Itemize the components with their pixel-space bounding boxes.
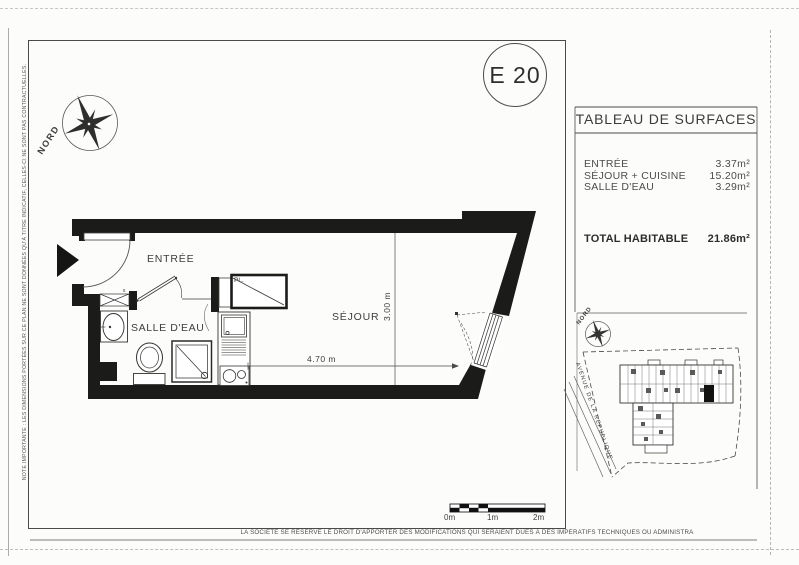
scale-bar (450, 504, 545, 512)
duct-marking-label: tt (123, 288, 126, 293)
toilet (134, 343, 166, 385)
compass-rose-icon (53, 86, 123, 160)
site-map: NORD (564, 306, 741, 477)
street-name-label: AVENUE DE LA REPUBLIQUE (574, 362, 613, 461)
kitchen-unit (218, 312, 250, 386)
site-building (620, 360, 733, 453)
room-label-sejour: SÉJOUR (332, 310, 379, 323)
shower (172, 341, 212, 382)
room-label-entree: ENTRÉE (147, 252, 194, 265)
closet (219, 275, 287, 308)
entrance-arrow-icon (57, 244, 79, 277)
site-compass-icon (581, 315, 615, 351)
closet-label: PL. (234, 277, 244, 284)
compass-north-label: NORD (35, 123, 61, 156)
room-label-salle-deau: SALLE D'EAU (131, 322, 204, 334)
opening-swing-line (204, 304, 209, 331)
window (455, 311, 505, 371)
duct-hatch (100, 294, 129, 306)
dimension-width-label: 4.70 m (307, 354, 336, 364)
walls (72, 211, 536, 399)
floor-plan-drawing: tt PL. (0, 0, 799, 565)
dimension-depth-label: 3.00 m (382, 292, 392, 321)
plan-sheet: NOTE IMPORTANTE : LES DIMENSIONS PORTÉES… (0, 0, 799, 565)
bathroom-door (136, 276, 211, 302)
entrance-door (83, 233, 130, 287)
site-highlighted-unit (704, 385, 714, 402)
washbasin (101, 311, 128, 342)
site-compass-north-label: NORD (576, 306, 594, 326)
